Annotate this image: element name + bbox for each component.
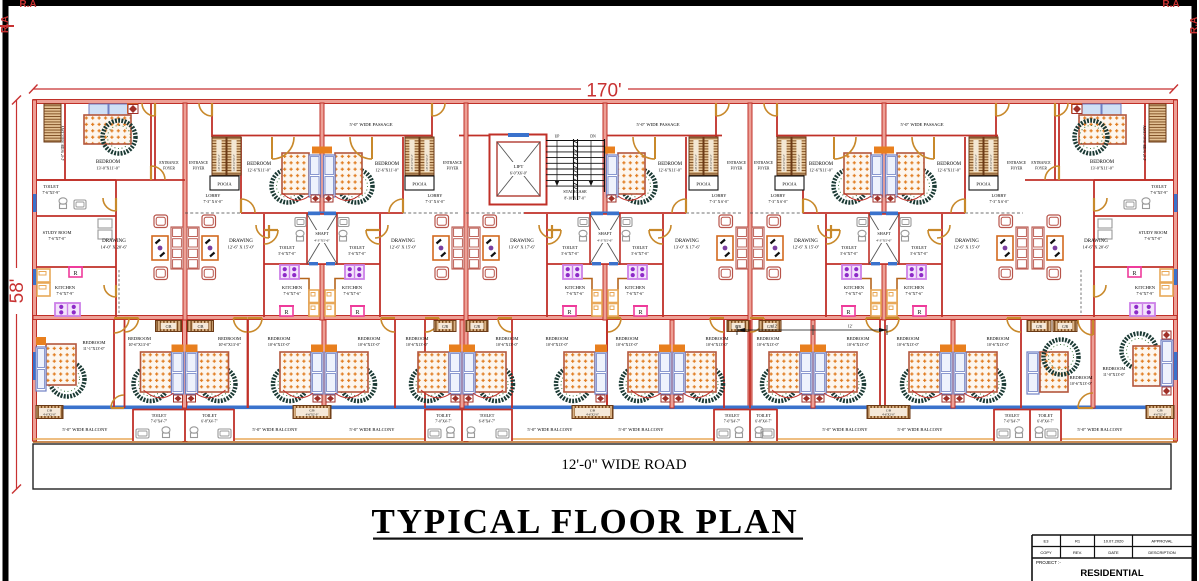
svg-text:10'-6"X13'-0": 10'-6"X13'-0" [616,342,639,347]
svg-text:13'-0" X 17'-6": 13'-0" X 17'-6" [509,245,536,250]
svg-text:SHAFT: SHAFT [598,231,612,236]
svg-text:C/B: C/B [474,325,480,329]
svg-text:TOILET: TOILET [43,184,59,189]
svg-text:7'-6"X7'-6": 7'-6"X7'-6" [905,292,923,296]
svg-text:5'-0" WIDE PASSAGE: 5'-0" WIDE PASSAGE [349,122,392,127]
svg-text:ENTRANCE: ENTRANCE [727,161,747,165]
svg-text:7'-3" X 6'-0": 7'-3" X 6'-0" [709,200,729,204]
svg-text:DRAWING: DRAWING [675,239,699,244]
svg-text:R: R [567,310,571,316]
svg-text:C/B: C/B [1036,325,1042,329]
svg-text:POOJA: POOJA [976,182,991,187]
svg-text:10'-6"X13'-0": 10'-6"X13'-0" [406,342,429,347]
svg-text:SHAFT: SHAFT [877,231,891,236]
svg-text:4'-6"X2'-0": 4'-6"X2'-0" [306,414,319,417]
svg-text:TOILET: TOILET [1151,184,1167,189]
svg-text:DRAWING: DRAWING [1084,239,1108,244]
svg-text:7'-6"X7'-6": 7'-6"X7'-6" [283,292,301,296]
svg-text:4'-6"X2'-0": 4'-6"X2'-0" [1154,414,1167,417]
svg-text:KITCHEN: KITCHEN [904,285,925,290]
svg-text:C/B: C/B [735,325,741,329]
svg-text:BEDROOM: BEDROOM [987,336,1010,341]
svg-text:5'-6"X7'-0": 5'-6"X7'-0" [910,252,928,256]
svg-text:12'-6"X11'-0": 12'-6"X11'-0" [375,167,398,172]
svg-text:4'-6"X2'-0": 4'-6"X2'-0" [586,414,599,417]
svg-text:R.A: R.A [1162,0,1179,10]
svg-text:DRAWING: DRAWING [794,239,818,244]
svg-text:5'-6"X7'-0": 5'-6"X7'-0" [278,252,296,256]
svg-text:BEDROOM: BEDROOM [658,162,683,167]
svg-text:R.A: R.A [0,16,11,33]
svg-text:10'-6"X13'-0": 10'-6"X13'-0" [757,342,780,347]
svg-text:7'-3" X 6'-0": 7'-3" X 6'-0" [425,200,445,204]
svg-text:10'-6"X13'-0": 10'-6"X13'-0" [218,342,241,347]
svg-text:FOYER: FOYER [1011,167,1023,171]
svg-text:5'-0" WIDE PASSAGE: 5'-0" WIDE PASSAGE [900,122,943,127]
svg-text:5'-0" WIDE BALCONY: 5'-0" WIDE BALCONY [897,427,943,432]
svg-text:UP: UP [555,135,560,139]
svg-text:10'-6"X13'-0": 10'-6"X13'-0" [987,342,1010,347]
svg-text:C/B 3'-0"X5'-2": C/B 3'-0"X5'-2" [411,154,414,171]
svg-text:C/B 3'-0"X5'-2": C/B 3'-0"X5'-2" [975,154,978,171]
svg-text:R: R [73,271,77,277]
svg-text:BEDROOM: BEDROOM [809,162,834,167]
svg-text:14'-6" X 20'-6": 14'-6" X 20'-6" [1083,245,1110,250]
svg-text:STUDY ROOM: STUDY ROOM [1139,230,1168,235]
svg-text:DN: DN [590,135,596,139]
svg-text:7'-6"X7'-6": 7'-6"X7'-6" [343,292,361,296]
svg-text:TOILET: TOILET [1038,413,1053,418]
svg-text:7'-6"X7'-6": 7'-6"X7'-6" [626,292,644,296]
svg-text:POOJA: POOJA [782,182,797,187]
svg-text:7'-0"X4'-7": 7'-0"X4'-7" [1004,420,1021,424]
svg-text:7'-6"X7'-6": 7'-6"X7'-6" [845,292,863,296]
svg-text:FOYER: FOYER [758,167,770,171]
svg-text:5'-0" WIDE BALCONY: 5'-0" WIDE BALCONY [618,427,664,432]
svg-text:BEDROOM: BEDROOM [1070,375,1093,380]
svg-text:R: R [917,310,921,316]
svg-text:11'-0"X13'-0": 11'-0"X13'-0" [1103,372,1125,377]
svg-text:6'-8"X4'-7": 6'-8"X4'-7" [479,420,496,424]
svg-text:ENTRANCE: ENTRANCE [189,161,209,165]
svg-text:4'-6"X2'-0": 4'-6"X2'-0" [882,414,895,417]
svg-text:R: R [284,310,288,316]
svg-text:5'-6"X7'-0": 5'-6"X7'-0" [348,252,366,256]
svg-text:7'-6"X7'-6": 7'-6"X7'-6" [566,292,584,296]
svg-text:7'-6"X7'-0": 7'-6"X7'-0" [48,237,66,241]
svg-text:TOILET: TOILET [632,245,648,250]
svg-text:TOILET: TOILET [202,413,217,418]
svg-text:E3: E3 [1044,539,1050,544]
svg-text:KITCHEN: KITCHEN [844,285,865,290]
svg-text:KITCHEN: KITCHEN [565,285,586,290]
svg-text:10'-6"X13'-0": 10'-6"X13'-0" [358,342,381,347]
svg-text:TOILET: TOILET [911,245,927,250]
svg-text:13'-0"X11'-0": 13'-0"X11'-0" [1090,165,1113,170]
svg-text:BEDROOM: BEDROOM [847,336,870,341]
svg-text:10'-6"X13'-0": 10'-6"X13'-0" [847,342,870,347]
svg-text:7'-6"X7'-9": 7'-6"X7'-9" [56,292,74,296]
svg-text:6'-8"X4'-7": 6'-8"X4'-7" [201,420,218,424]
svg-text:C/B 3'-0"X5'-2": C/B 3'-0"X5'-2" [783,154,786,171]
svg-text:10'-6"X13'-0": 10'-6"X13'-0" [706,342,729,347]
svg-text:BEDROOM: BEDROOM [496,336,519,341]
svg-text:KITCHEN: KITCHEN [342,285,363,290]
svg-text:C/B 3'-0"X5'-2": C/B 3'-0"X5'-2" [426,154,429,171]
svg-text:C/B 3'-0"X5'-2": C/B 3'-0"X5'-2" [695,154,698,171]
svg-text:TYPICAL FLOOR PLAN: TYPICAL FLOOR PLAN [371,502,798,541]
svg-text:6'-0"X6'-0": 6'-0"X6'-0" [510,172,528,176]
svg-text:12'-6" X 15'-0": 12'-6" X 15'-0" [793,245,820,250]
svg-text:5'-6"X7'-0": 5'-6"X7'-0" [631,252,649,256]
svg-text:ENTRANCE: ENTRANCE [1031,161,1051,165]
svg-text:POOJA: POOJA [412,182,427,187]
svg-text:170': 170' [586,81,621,102]
svg-text:BEDROOM: BEDROOM [937,162,962,167]
svg-text:LOBBY: LOBBY [771,193,787,198]
svg-text:C/B: C/B [1157,409,1162,413]
svg-text:5'-0" WIDE BALCONY: 5'-0" WIDE BALCONY [1077,427,1123,432]
svg-text:TOILET: TOILET [436,413,451,418]
svg-text:POOJA: POOJA [696,182,711,187]
svg-text:7'-6"X5'-9": 7'-6"X5'-9" [1150,191,1168,195]
svg-text:7'-3" X 6'-0": 7'-3" X 6'-0" [203,200,223,204]
svg-text:12'-6" X 15'-0": 12'-6" X 15'-0" [228,245,255,250]
svg-text:7'-3" X 6'-0": 7'-3" X 6'-0" [989,200,1009,204]
svg-text:C/B: C/B [166,325,172,329]
svg-text:R.A: R.A [1189,17,1199,34]
svg-text:TOILET: TOILET [562,245,578,250]
svg-text:7'-0"X4'-7": 7'-0"X4'-7" [435,420,452,424]
svg-text:12'-6"X11'-0": 12'-6"X11'-0" [937,167,960,172]
svg-text:7'-6"X5'-9": 7'-6"X5'-9" [42,191,60,195]
svg-text:ENTRANCE: ENTRANCE [754,161,774,165]
svg-text:LOBBY: LOBBY [428,193,444,198]
svg-text:10.07.2020: 10.07.2020 [1103,539,1124,544]
svg-text:10'-6"X13'-0": 10'-6"X13'-0" [268,342,291,347]
svg-text:5'-0" WIDE PASSAGE: 5'-0" WIDE PASSAGE [636,122,679,127]
svg-text:12': 12' [773,324,778,329]
svg-text:RESIDENTIAL: RESIDENTIAL [1080,568,1144,579]
svg-text:7'-0"X4'-7": 7'-0"X4'-7" [151,420,168,424]
svg-text:LIFT: LIFT [514,164,524,169]
svg-text:R: R [638,310,642,316]
svg-text:POOJA: POOJA [217,182,232,187]
svg-text:BEDROOM: BEDROOM [83,340,106,345]
svg-text:BEDROOM: BEDROOM [128,336,151,341]
svg-text:ENTRANCE: ENTRANCE [1007,161,1027,165]
svg-text:5'-0" WIDE BALCONY: 5'-0" WIDE BALCONY [252,427,298,432]
svg-text:5'-6"X7'-0": 5'-6"X7'-0" [561,252,579,256]
svg-text:12'-6"X11'-0": 12'-6"X11'-0" [809,167,832,172]
svg-text:12'-6" X 15'-0": 12'-6" X 15'-0" [390,245,417,250]
svg-text:TOILET: TOILET [480,413,495,418]
svg-text:C/B: C/B [47,409,52,413]
svg-text:BEDROOM: BEDROOM [616,336,639,341]
svg-text:5'-0" WIDE BALCONY: 5'-0" WIDE BALCONY [527,427,573,432]
svg-text:8'-10"X17'-0": 8'-10"X17'-0" [564,197,586,201]
svg-text:C/B: C/B [886,409,891,413]
svg-text:12'-0" WIDE ROAD: 12'-0" WIDE ROAD [561,457,686,473]
svg-text:BEDROOM: BEDROOM [358,336,381,341]
svg-text:TOILET: TOILET [152,413,167,418]
svg-text:12'-6" X 15'-0": 12'-6" X 15'-0" [954,245,981,250]
svg-text:TOILET: TOILET [725,413,740,418]
svg-text:10'-6"X13'-0": 10'-6"X13'-0" [496,342,519,347]
svg-text:LOBBY: LOBBY [206,193,222,198]
svg-text:COPY: COPY [1040,550,1052,555]
svg-text:KITCHEN: KITCHEN [55,285,76,290]
svg-text:4'-3"X5'-6": 4'-3"X5'-6" [597,239,613,243]
svg-text:SHAFT: SHAFT [315,231,329,236]
svg-text:STAIRCASE: STAIRCASE [563,189,587,194]
svg-text:BEDROOM: BEDROOM [375,162,400,167]
svg-text:DESCRIPTION: DESCRIPTION [1148,550,1175,555]
svg-text:4'-0" WIDE BALCONY: 4'-0" WIDE BALCONY [61,125,65,161]
svg-text:11'-1"X13'-0": 11'-1"X13'-0" [83,346,105,351]
svg-text:C/B: C/B [309,409,314,413]
svg-text:C/B 3'-0"X5'-2": C/B 3'-0"X5'-2" [798,154,801,171]
svg-text:5'-0" WIDE BALCONY: 5'-0" WIDE BALCONY [822,427,868,432]
svg-text:10'-6"X13'-0": 10'-6"X13'-0" [128,342,151,347]
svg-text:58': 58' [7,279,28,304]
svg-text:LOBBY: LOBBY [992,193,1008,198]
svg-text:13'-0"X11'-0": 13'-0"X11'-0" [96,165,119,170]
svg-text:KITCHEN: KITCHEN [625,285,646,290]
svg-text:5'-0" WIDE BALCONY: 5'-0" WIDE BALCONY [62,427,108,432]
svg-text:BEDROOM: BEDROOM [1103,366,1126,371]
svg-text:TOILET: TOILET [1005,413,1020,418]
svg-text:BEDROOM: BEDROOM [897,336,920,341]
svg-text:R: R [355,310,359,316]
svg-text:12'-6"X11'-0": 12'-6"X11'-0" [247,167,270,172]
svg-text:R: R [846,310,850,316]
svg-text:12'-6"X11'-0": 12'-6"X11'-0" [658,167,681,172]
svg-text:BEDROOM: BEDROOM [406,336,429,341]
svg-text:7'-6"X7'-0": 7'-6"X7'-0" [1144,237,1162,241]
svg-text:APPROVAL: APPROVAL [1151,539,1173,544]
svg-text:BEDROOM: BEDROOM [96,160,121,165]
svg-text:10'-6"X13'-0": 10'-6"X13'-0" [1070,381,1093,386]
svg-text:STUDY ROOM: STUDY ROOM [43,230,72,235]
svg-text:7'-0"X4'-7": 7'-0"X4'-7" [724,420,741,424]
svg-text:C/B 3'-0"X5'-2": C/B 3'-0"X5'-2" [218,154,221,171]
svg-text:BEDROOM: BEDROOM [247,162,272,167]
svg-text:6'-8"X4'-7": 6'-8"X4'-7" [1037,420,1054,424]
svg-text:10'-0"X13'-0": 10'-0"X13'-0" [546,342,569,347]
svg-text:C/B: C/B [442,325,448,329]
svg-text:KITCHEN: KITCHEN [1135,285,1156,290]
svg-text:C/B: C/B [590,409,595,413]
svg-text:13'-0" X 17'-6": 13'-0" X 17'-6" [674,245,701,250]
svg-text:7'-3" X 6'-0": 7'-3" X 6'-0" [768,200,788,204]
svg-text:ENTRANCE: ENTRANCE [443,161,463,165]
svg-text:FOYER: FOYER [731,167,743,171]
svg-text:5'-0" WIDE BALCONY: 5'-0" WIDE BALCONY [349,427,395,432]
svg-text:REV.: REV. [1073,550,1082,555]
svg-text:4'-0" WIDE BALCONY: 4'-0" WIDE BALCONY [1143,125,1147,161]
svg-text:C/B: C/B [1062,325,1068,329]
svg-text:C/B 3'-0"X5'-2": C/B 3'-0"X5'-2" [233,154,236,171]
svg-text:14'-0" X 20'-6": 14'-0" X 20'-6" [101,245,128,250]
svg-text:C/B: C/B [198,325,204,329]
svg-text:FOYER: FOYER [447,167,459,171]
svg-text:BEDROOM: BEDROOM [218,336,241,341]
svg-text:TOILET: TOILET [841,245,857,250]
svg-text:DRAWING: DRAWING [102,239,126,244]
svg-text:DRAWING: DRAWING [955,239,979,244]
svg-text:R: R [1132,271,1136,277]
svg-text:FOYER: FOYER [193,167,205,171]
svg-text:TOILET: TOILET [349,245,365,250]
svg-text:R1: R1 [1075,539,1081,544]
svg-text:BEDROOM: BEDROOM [546,336,569,341]
svg-text:12': 12' [848,324,853,329]
svg-text:BEDROOM: BEDROOM [268,336,291,341]
svg-text:DRAWING: DRAWING [229,239,253,244]
svg-text:5'-6"X7'-0": 5'-6"X7'-0" [840,252,858,256]
svg-text:PROJECT :-: PROJECT :- [1036,560,1061,565]
svg-text:10'-6"X13'-0": 10'-6"X13'-0" [897,342,920,347]
svg-text:6'-8"X4'-7": 6'-8"X4'-7" [755,420,772,424]
svg-text:DRAWING: DRAWING [510,239,534,244]
svg-text:C/B 3'-0"X5'-2": C/B 3'-0"X5'-2" [710,154,713,171]
svg-text:BEDROOM: BEDROOM [706,336,729,341]
svg-text:DATE: DATE [1108,550,1119,555]
svg-text:7'-6"X7'-9": 7'-6"X7'-9" [1136,292,1154,296]
svg-text:4'-6"X2'-0": 4'-6"X2'-0" [43,414,56,417]
svg-text:R.A: R.A [19,0,36,10]
svg-text:KITCHEN: KITCHEN [282,285,303,290]
svg-text:4'-3"X5'-6": 4'-3"X5'-6" [876,239,892,243]
svg-text:ENTRANCE: ENTRANCE [159,161,179,165]
svg-text:DRAWING: DRAWING [391,239,415,244]
svg-text:TOILET: TOILET [756,413,771,418]
svg-text:BEDROOM: BEDROOM [1090,160,1115,165]
svg-text:LOBBY: LOBBY [712,193,728,198]
svg-text:FOYER: FOYER [163,167,175,171]
svg-text:TOILET: TOILET [279,245,295,250]
svg-text:C/B 3'-0"X5'-2": C/B 3'-0"X5'-2" [990,154,993,171]
svg-text:BEDROOM: BEDROOM [757,336,780,341]
svg-text:4'-3"X5'-6": 4'-3"X5'-6" [314,239,330,243]
svg-text:FOYER: FOYER [1035,167,1047,171]
